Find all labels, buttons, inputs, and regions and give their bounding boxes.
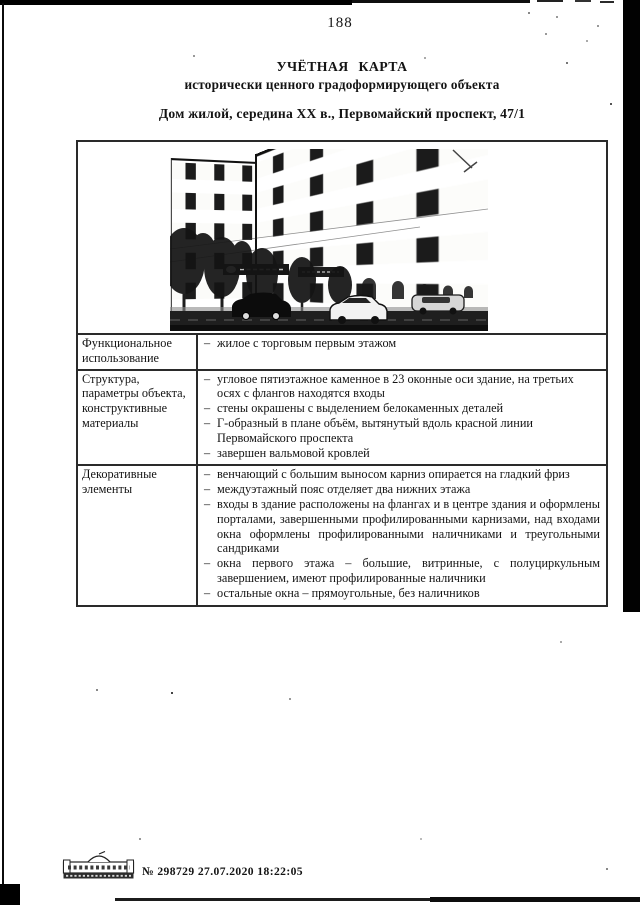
photo-street-scene [170,149,488,331]
list-item: –жилое с торговым первым этажом [204,336,600,351]
photo-cell [78,142,606,335]
list-item-text: завершен вальмовой кровлей [217,446,370,460]
table-row: Декоративные элементы –венчающий с больш… [78,466,606,604]
row-content: –угловое пятиэтажное каменное в 23 оконн… [198,371,606,465]
registration-number: № 298729 27.07.2020 18:22:05 [142,865,303,878]
list-item-text: венчающий с большим выносом карниз опира… [217,467,570,481]
bullet-dash: – [204,497,210,512]
scan-edge-left [2,3,4,902]
scan-edge-top-thin [352,0,530,3]
bullet-dash: – [204,416,210,431]
scan-edge-bottom-thick [430,897,640,902]
bullet-dash: – [204,446,210,461]
building-photo [170,149,488,331]
bullet-dash: – [204,336,210,351]
list-item: –венчающий с большим выносом карниз опир… [204,467,600,482]
list-item: –Г-образный в плане объём, вытянутый вдо… [204,416,600,446]
list-item-text: междуэтажный пояс отделяет два нижних эт… [217,482,470,496]
list-item-text: окна первого этажа – большие, витринные,… [217,556,600,585]
table-row: Функциональное использование –жилое с то… [78,335,606,371]
list-item-text: Г-образный в плане объём, вытянутый вдол… [217,416,533,445]
document-title: УЧЁТНАЯ КАРТА [44,59,640,75]
list-item-text: угловое пятиэтажное каменное в 23 оконны… [217,372,574,401]
document-subtitle: исторически ценного градоформирующего об… [44,77,640,93]
list-item: –окна первого этажа – большие, витринные… [204,556,600,586]
scan-edge-dash [600,1,614,3]
record-table: Функциональное использование –жилое с то… [76,140,608,607]
bullet-dash: – [204,586,210,601]
list-item-text: остальные окна – прямоугольные, без нали… [217,586,480,600]
row-content: –жилое с торговым первым этажом [198,335,606,369]
list-item-text: входы в здание расположены на флангах и … [217,497,600,555]
bullet-dash: – [204,401,210,416]
bullet-dash: – [204,482,210,497]
list-item: –входы в здание расположены на флангах и… [204,497,600,556]
document-page: 188 УЧЁТНАЯ КАРТА исторически ценного гр… [0,0,640,905]
list-item-text: стены окрашены с выделением белокаменных… [217,401,503,415]
list-item: –стены окрашены с выделением белокаменны… [204,401,600,416]
list-item: –междуэтажный пояс отделяет два нижних э… [204,482,600,497]
table-row: Структура, параметры объекта, конструкти… [78,371,606,467]
row-content: –венчающий с большим выносом карниз опир… [198,466,606,604]
list-item: –остальные окна – прямоугольные, без нал… [204,586,600,601]
scan-noise [0,0,2,2]
bullet-dash: – [204,372,210,387]
object-title: Дом жилой, середина XX в., Первомайский … [44,106,640,122]
row-label: Декоративные элементы [78,466,198,604]
scan-edge-dash [575,0,591,2]
bullet-dash: – [204,467,210,482]
row-label: Функциональное использование [78,335,198,369]
list-item-text: жилое с торговым первым этажом [217,336,396,350]
scan-corner-block [0,884,20,905]
page-number: 188 [318,15,362,32]
bullet-dash: – [204,556,210,571]
government-building-stamp-icon [62,851,136,881]
list-item: –завершен вальмовой кровлей [204,446,600,461]
row-label: Структура, параметры объекта, конструкти… [78,371,198,465]
scan-edge-dash [537,0,563,2]
scan-edge-top [0,0,352,5]
list-item: –угловое пятиэтажное каменное в 23 оконн… [204,372,600,402]
